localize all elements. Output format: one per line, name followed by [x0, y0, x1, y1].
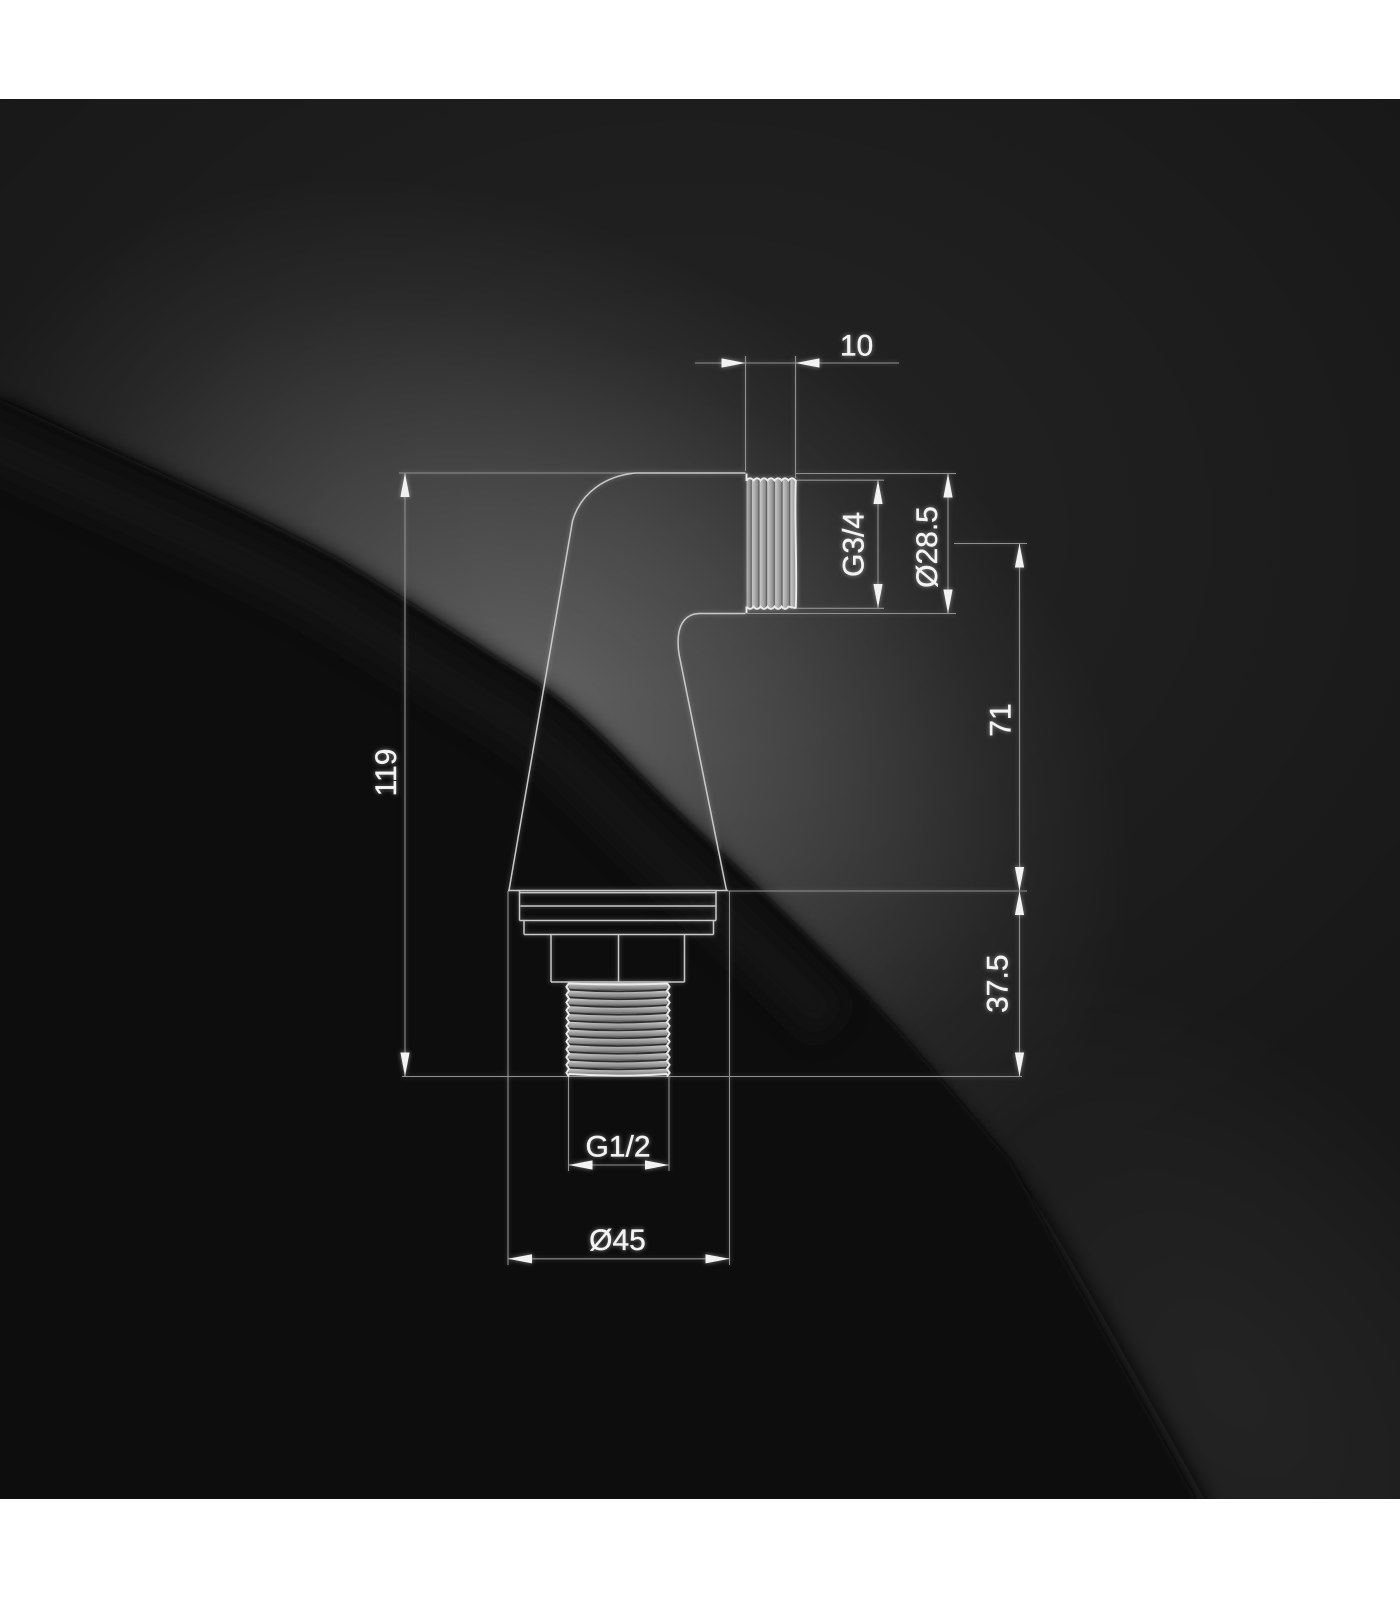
- svg-text:Ø45: Ø45: [589, 1224, 646, 1257]
- svg-text:71: 71: [984, 703, 1017, 736]
- svg-text:G1/2: G1/2: [585, 1131, 650, 1164]
- svg-text:G3/4: G3/4: [838, 512, 871, 577]
- svg-text:Ø28.5: Ø28.5: [911, 506, 944, 588]
- svg-text:119: 119: [370, 749, 403, 797]
- svg-text:37.5: 37.5: [982, 955, 1015, 1013]
- svg-text:10: 10: [840, 330, 873, 363]
